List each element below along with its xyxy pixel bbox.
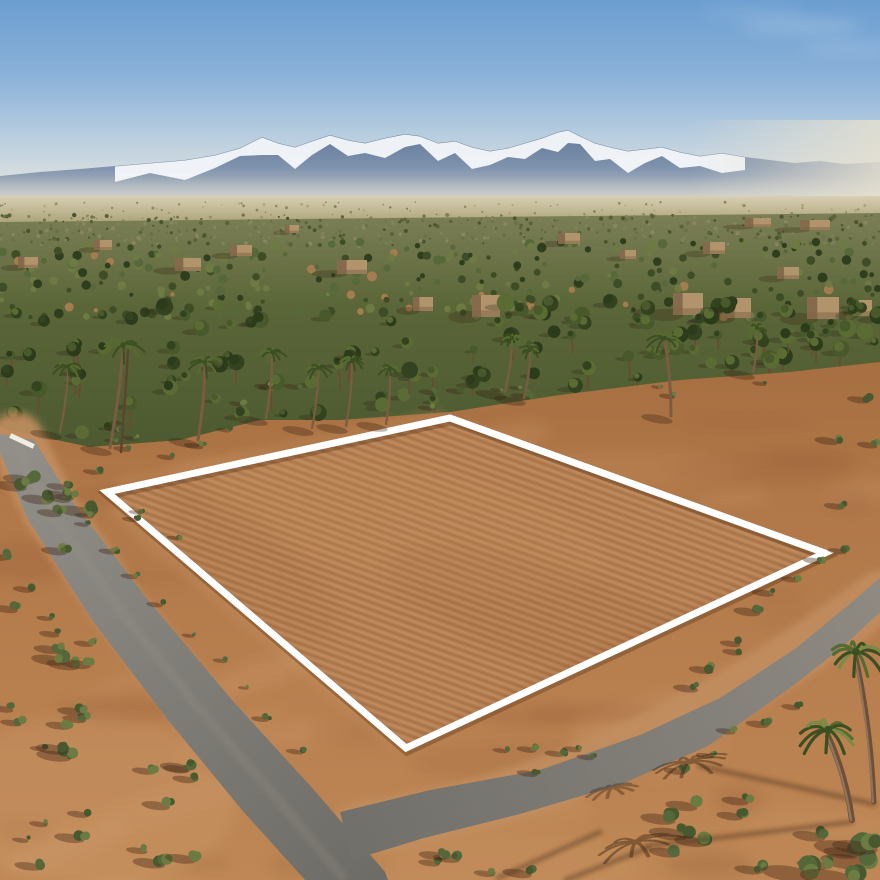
aerial-photo: Aerial drone photo of a four-sided dirt … (0, 0, 880, 880)
cloud-wisp (700, 6, 804, 18)
cloud-wisp (738, 18, 862, 34)
scene-figure: Aerial drone photo of a four-sided dirt … (0, 0, 880, 880)
